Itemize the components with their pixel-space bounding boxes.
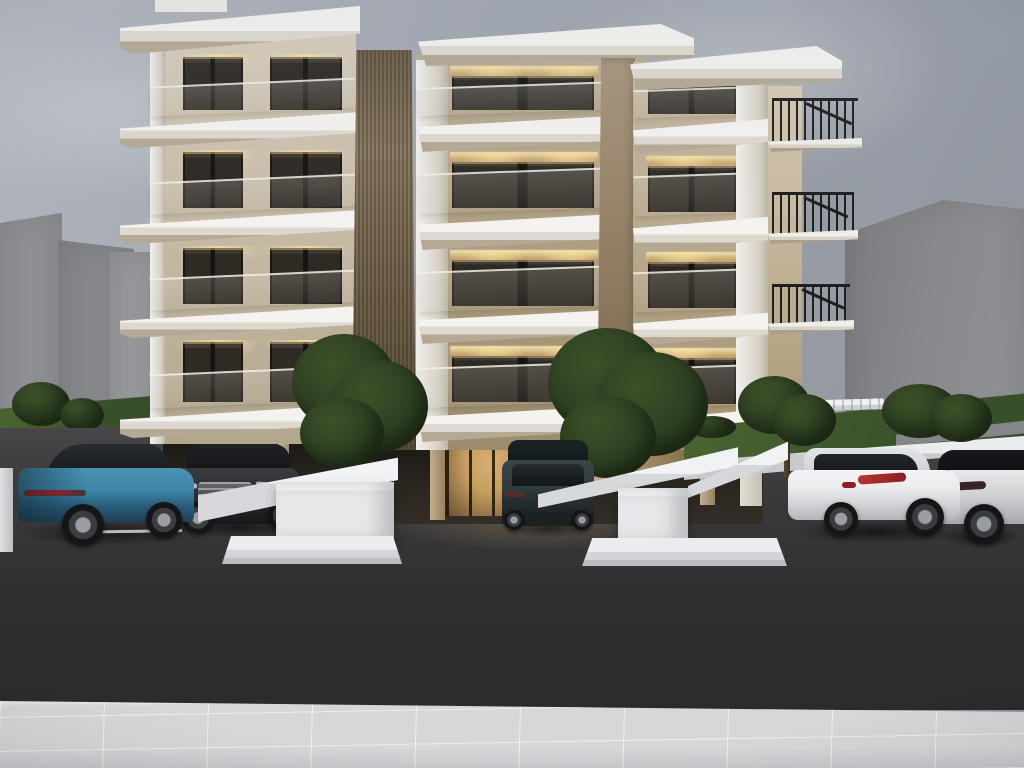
car-wheel [504,510,524,530]
car-taillight [842,482,856,488]
bush-left-small [60,398,104,432]
car-wheel [906,498,944,536]
car-teal-crossover [18,442,194,546]
car-rear-window [512,464,584,486]
roof-parapet [155,0,227,12]
tree-canopy [930,394,992,442]
tree-canopy [772,394,836,446]
architectural-render [0,0,1024,768]
entry-wall-block [618,488,688,544]
car-wheel [572,510,592,530]
wall-fragment-left [0,468,13,552]
car-wheel [62,504,104,546]
entry-platform [222,536,402,564]
car-taillight [24,490,86,496]
car-white-suv [788,448,960,540]
car-wheel [964,504,1004,544]
tree-canopy [300,398,384,468]
car-wheel [146,502,182,538]
entry-platform [582,538,787,566]
car-wheel [824,502,858,536]
entry-wall-block [276,482,394,542]
car-taillight [506,492,523,497]
